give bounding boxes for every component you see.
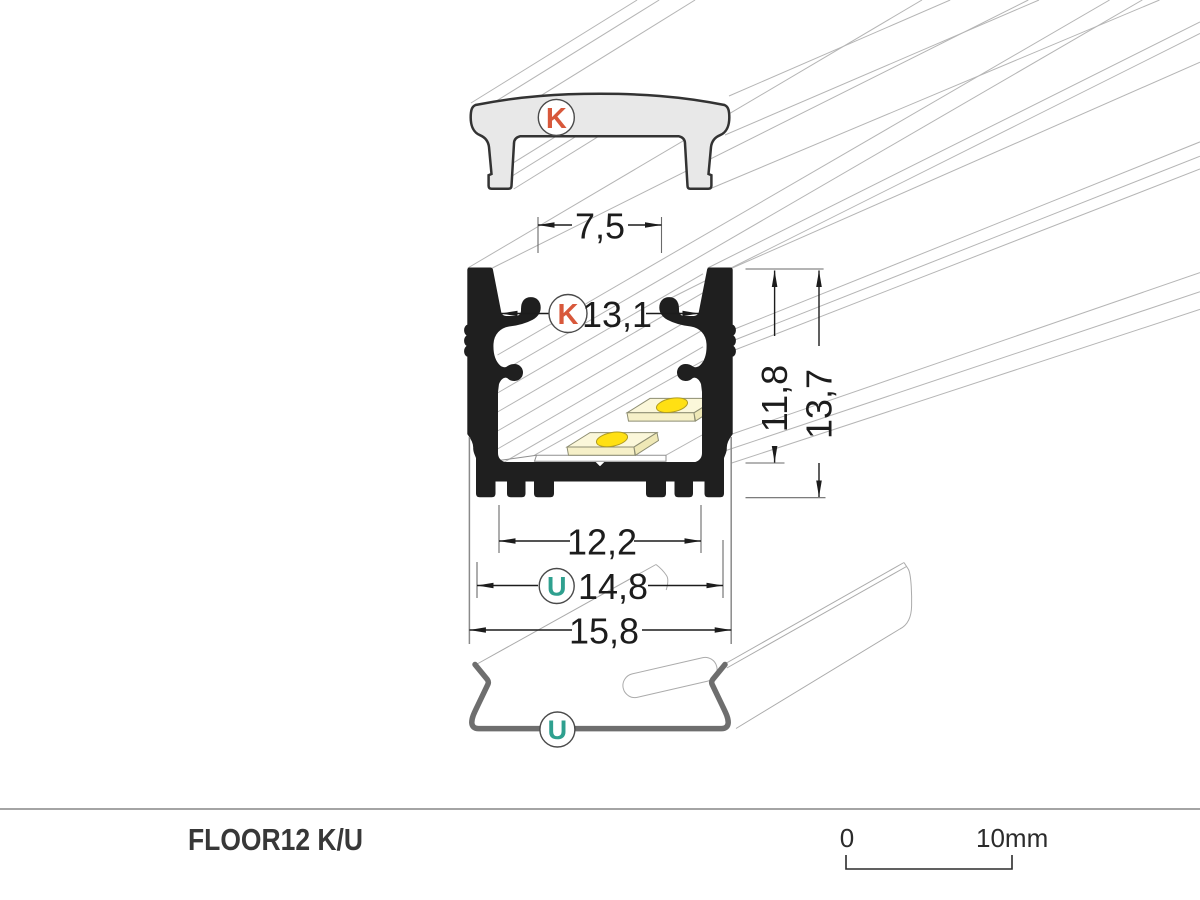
svg-text:K: K — [546, 103, 567, 135]
svg-text:14,8: 14,8 — [578, 566, 648, 607]
svg-text:12,2: 12,2 — [567, 522, 637, 563]
svg-text:10mm: 10mm — [976, 823, 1048, 853]
svg-text:FLOOR12 K/U: FLOOR12 K/U — [188, 822, 363, 857]
svg-text:13,7: 13,7 — [799, 369, 840, 439]
svg-text:0: 0 — [840, 823, 854, 853]
svg-text:K: K — [558, 299, 579, 331]
svg-text:7,5: 7,5 — [575, 206, 625, 247]
svg-text:15,8: 15,8 — [569, 611, 639, 652]
svg-text:U: U — [548, 715, 568, 745]
svg-text:11,8: 11,8 — [754, 365, 795, 432]
svg-text:13,1: 13,1 — [582, 294, 652, 335]
svg-text:U: U — [547, 572, 567, 602]
